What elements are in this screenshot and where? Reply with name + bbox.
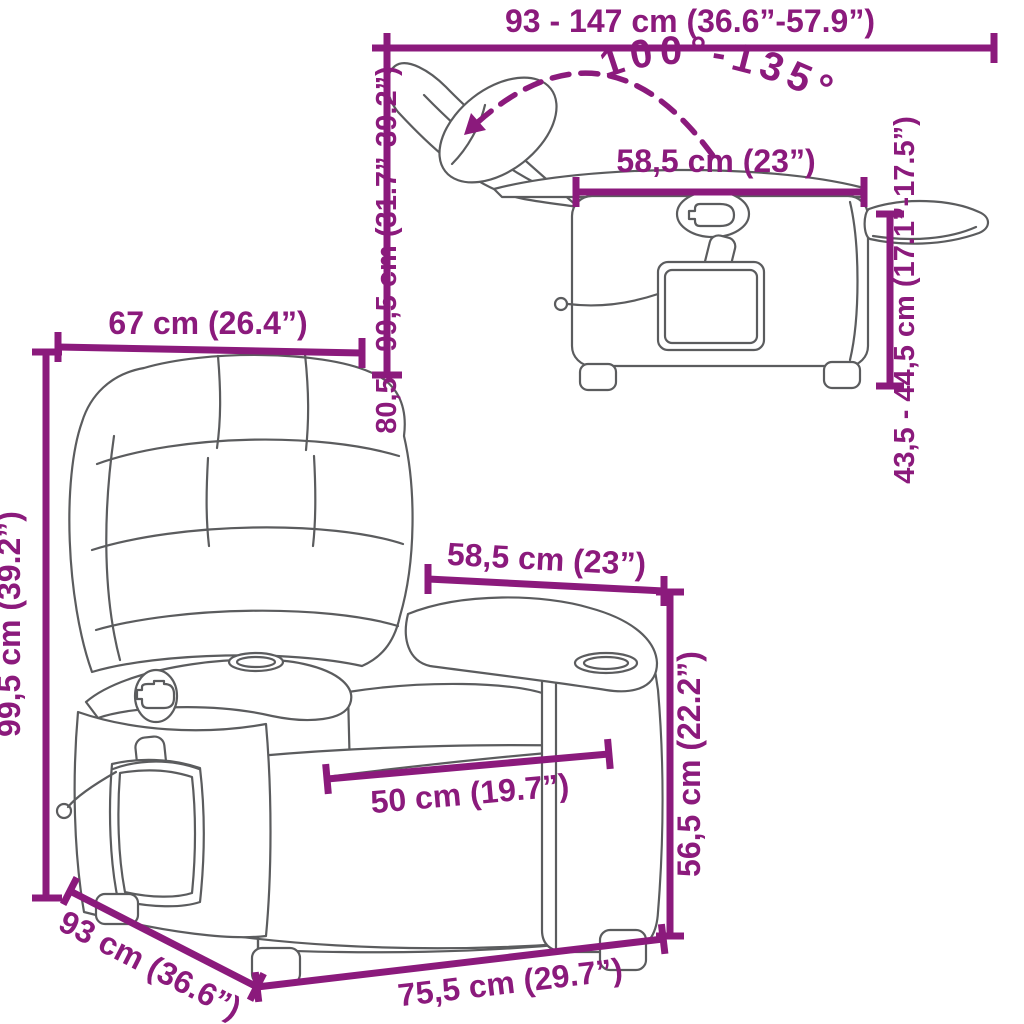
- dimension-diagram: 93 - 147 cm (36.6”-57.9”) 80,5 - 99,5 cm…: [0, 0, 1024, 1024]
- dim-recline-angle-label: 100°-135°: [595, 28, 845, 114]
- dim-reclined-height-range-label: 80,5 - 99,5 cm (31.7”-39.2”): [371, 66, 403, 434]
- front-recline-lever-keyhole: [137, 681, 174, 708]
- reclined-cable-ring: [555, 298, 567, 310]
- reclined-foot-left: [580, 364, 616, 390]
- reclined-foot-right: [824, 362, 860, 388]
- dim-reclined-seat-height-label: 43,5 - 44,5 cm (17.1”-17.5”): [889, 116, 921, 484]
- dim-front-armrest-height-label: 56,5 cm (22.2”): [671, 651, 707, 877]
- dim-reclined-seat-height: 43,5 - 44,5 cm (17.1”-17.5”): [876, 116, 921, 484]
- front-right-armrest-body: [542, 664, 663, 952]
- dim-front-total-height: 99,5 cm (39.2”): [0, 352, 62, 898]
- dim-front-armrest-height: 56,5 cm (22.2”): [656, 592, 707, 936]
- front-right-armrest-pad: [406, 597, 657, 691]
- front-chair-drawing: [57, 354, 663, 984]
- dim-reclined-armrest-length-label: 58,5 cm (23”): [616, 143, 815, 179]
- dim-front-backrest-width-label: 67 cm (26.4”): [108, 305, 307, 341]
- reclined-side-pocket: [658, 262, 764, 350]
- dim-reclined-length-range-label: 93 - 147 cm (36.6”-57.9”): [505, 3, 875, 39]
- front-left-armrest-pad: [86, 660, 351, 720]
- front-cable-ring: [57, 804, 71, 818]
- dim-front-armrest-length-label: 58,5 cm (23”): [446, 536, 647, 582]
- reclined-recline-lever-keyhole: [689, 204, 734, 226]
- dim-front-total-height-label: 99,5 cm (39.2”): [0, 511, 27, 737]
- dim-reclined-height-range: 80,5 - 99,5 cm (31.7”-39.2”): [371, 48, 403, 434]
- dim-front-armrest-length: 58,5 cm (23”): [428, 536, 664, 606]
